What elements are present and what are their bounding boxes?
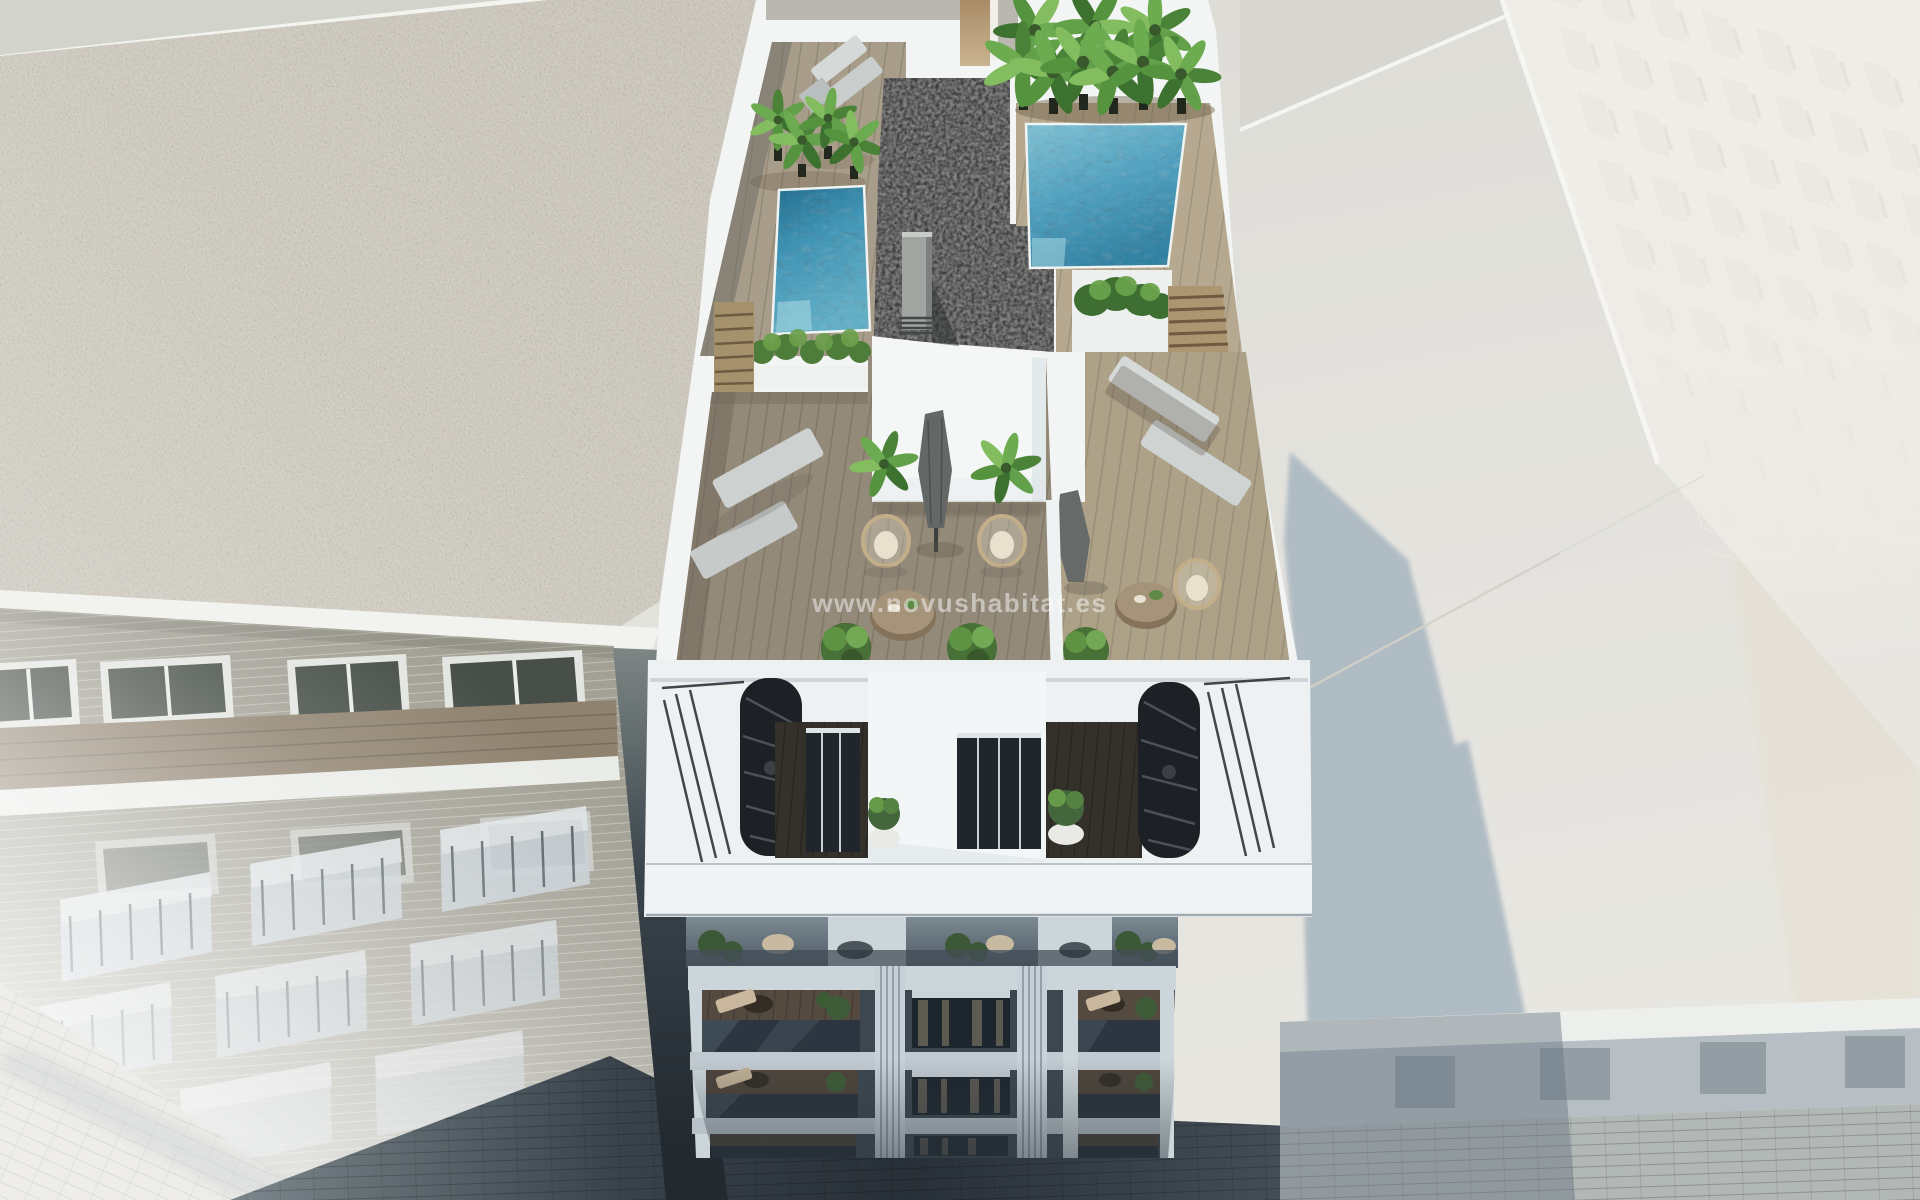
svg-text:www.novushabitat.es: www.novushabitat.es <box>811 588 1107 618</box>
